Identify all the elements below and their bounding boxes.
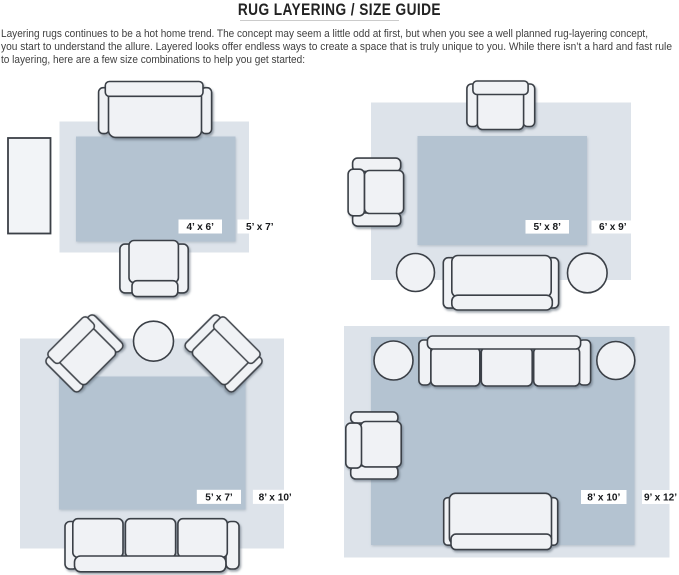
svg-text:5’ x 7’: 5’ x 7’ bbox=[246, 222, 274, 233]
svg-text:4’ x 6’: 4’ x 6’ bbox=[186, 222, 214, 233]
svg-text:5’ x 8’: 5’ x 8’ bbox=[533, 222, 561, 233]
svg-text:8’ x 10’: 8’ x 10’ bbox=[587, 492, 620, 503]
svg-text:8’ x 10’: 8’ x 10’ bbox=[259, 492, 292, 503]
svg-text:5’ x 7’: 5’ x 7’ bbox=[205, 492, 233, 503]
svg-text:6’ x 9’: 6’ x 9’ bbox=[599, 222, 627, 233]
svg-text:9’ x 12’: 9’ x 12’ bbox=[644, 492, 677, 503]
